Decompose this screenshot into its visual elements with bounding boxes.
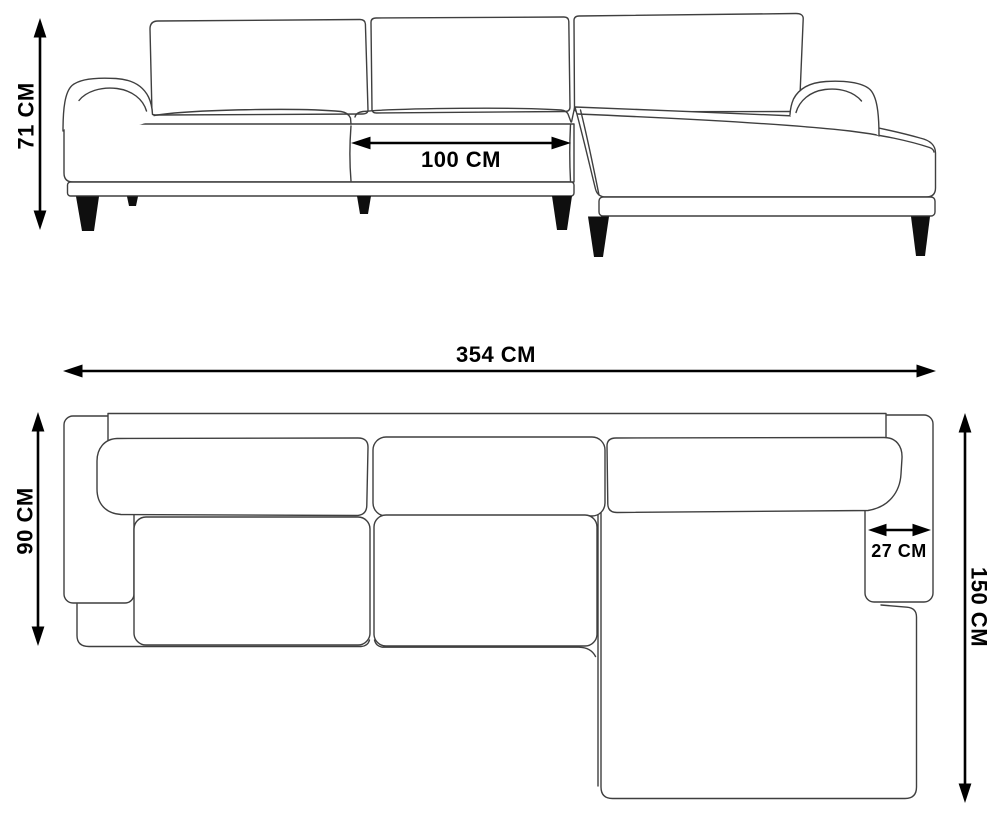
dimension-chaise-depth-arrow-down [959,784,972,804]
dimension-depth: 90 CM [13,412,45,646]
dimension-chaise-depth-arrow-up [959,413,972,433]
sofa-dimension-diagram: 71 CM 100 CM 354 CM [0,0,1000,820]
dimension-seat-width-label: 100 CM [421,147,501,172]
front-leg-rear-stub-middle [357,196,371,214]
front-elevation-view: 71 CM 100 CM [14,14,936,258]
dimension-height-arrow-up [34,18,47,38]
dimension-armrest-width: 27 CM [868,524,931,561]
dimension-chaise-depth: 150 CM [959,413,992,803]
plan-back-cushion-middle [373,437,605,516]
front-leg-right [552,196,572,230]
plan-seat-cushion-left [134,517,370,645]
dimension-height-label: 71 CM [14,82,39,149]
diagram-canvas: 71 CM 100 CM 354 CM [0,0,1000,820]
dimension-height-arrow-down [34,211,47,231]
dimension-total-width-label: 354 CM [456,342,536,367]
top-plan-view: 90 CM 27 CM 150 CM [13,412,992,803]
plan-seat-cushion-middle [374,515,597,646]
plan-back-cushion-left [97,438,368,516]
front-chaise-body [575,107,936,197]
dimension-depth-label: 90 CM [13,487,38,554]
dimension-total-width: 354 CM [63,342,936,378]
front-chaise-leg-right [911,217,930,257]
dimension-chaise-depth-label: 150 CM [967,567,992,647]
front-cushion-gap [572,108,575,122]
front-leg-left [76,197,99,232]
dimension-total-width-arrow-right [917,365,937,378]
dimension-total-width-arrow-left [63,365,83,378]
dimension-height: 71 CM [14,18,47,230]
dimension-depth-arrow-up [32,412,45,432]
plan-back-panel-fill [108,412,886,440]
front-back-cushion-left [150,20,368,116]
front-main-plinth [68,182,575,196]
dimension-armrest-width-label: 27 CM [871,541,927,561]
front-back-cushion-right [574,14,803,112]
front-face-seam-right [570,125,571,181]
dimension-depth-arrow-down [32,627,45,647]
plan-back-cushion-right [607,438,902,513]
front-back-cushion-middle [371,17,570,113]
front-chaise-plinth [599,197,935,216]
front-chaise-leg-left [588,217,609,258]
front-leg-rear-stub-left [127,197,138,207]
